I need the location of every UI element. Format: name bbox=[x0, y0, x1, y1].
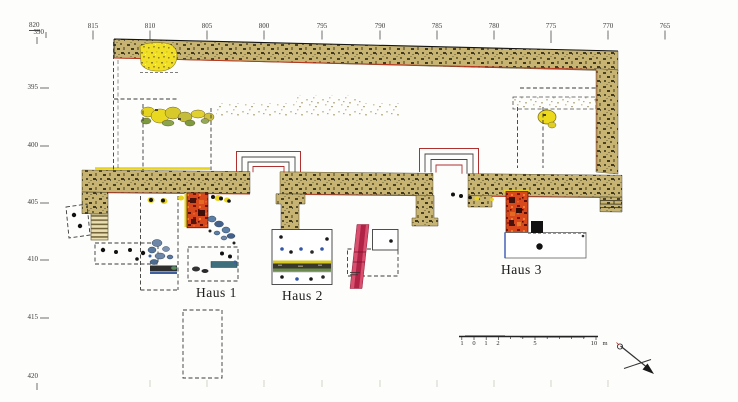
east-wall bbox=[596, 69, 618, 174]
pink-stripe-feature bbox=[350, 225, 369, 289]
top-axis-tick: 775 bbox=[546, 23, 557, 30]
scale-label: 1 bbox=[484, 341, 487, 348]
left-axis-tick: 405 bbox=[16, 199, 38, 206]
left-axis-tick: 410 bbox=[16, 256, 38, 263]
site-plan: 820 815 810 805 800 795 790 785 780 775 … bbox=[0, 0, 738, 402]
top-axis-tick: 765 bbox=[660, 23, 671, 30]
yellow-deposit-e bbox=[538, 110, 556, 128]
finds-haus1-se bbox=[192, 252, 237, 274]
stair-feature bbox=[91, 214, 108, 240]
top-axis-tick: 770 bbox=[603, 23, 614, 30]
plan-drawing bbox=[0, 0, 738, 402]
scale-label: 2 bbox=[496, 341, 499, 348]
left-axis-tick: 390 bbox=[22, 29, 44, 36]
stones-haus1-east bbox=[208, 216, 236, 245]
top-axis-tick: 800 bbox=[259, 23, 270, 30]
top-axis-tick: 795 bbox=[317, 23, 328, 30]
west-buttress bbox=[82, 192, 108, 214]
yellow-deposit-nw bbox=[140, 42, 178, 72]
postholes-west bbox=[72, 213, 152, 261]
rubble-scatter-band bbox=[216, 95, 596, 116]
left-axis-tick: 400 bbox=[16, 142, 38, 149]
wall-pillar-2 bbox=[412, 195, 438, 226]
left-axis-tick: 395 bbox=[16, 84, 38, 91]
scale-bar bbox=[459, 336, 598, 341]
top-axis-tick: 815 bbox=[88, 23, 99, 30]
stones-haus1-central bbox=[148, 240, 177, 275]
hearth-haus1 bbox=[185, 193, 209, 228]
top-axis-tick: 785 bbox=[432, 23, 443, 30]
top-axis-tick: 780 bbox=[489, 23, 500, 30]
left-axis-tick: 415 bbox=[16, 314, 38, 321]
north-arrow-icon bbox=[617, 343, 655, 375]
entrance-steps-1 bbox=[237, 152, 301, 173]
haus-1-label: Haus 1 bbox=[196, 286, 237, 300]
scale-label: 10 bbox=[591, 341, 598, 348]
wall-pillar-1 bbox=[276, 194, 305, 231]
yellow-wall-top-line bbox=[95, 167, 210, 170]
haus-2-label: Haus 2 bbox=[282, 289, 323, 303]
top-axis-tick: 790 bbox=[375, 23, 386, 30]
scale-unit-label: m bbox=[602, 341, 607, 348]
hearth-haus3 bbox=[504, 190, 529, 233]
north-wall bbox=[114, 39, 618, 71]
scale-label: 0 bbox=[472, 341, 475, 348]
room-haus2 bbox=[272, 230, 332, 285]
left-axis-tick: 420 bbox=[16, 373, 38, 380]
stone-band-haus1 bbox=[141, 107, 214, 126]
top-axis-tick: 805 bbox=[202, 23, 213, 30]
scale-label: 5 bbox=[533, 341, 536, 348]
bottom-faint-ticks bbox=[150, 380, 608, 387]
haus-3-label: Haus 3 bbox=[501, 263, 542, 277]
top-axis-tick: 810 bbox=[145, 23, 156, 30]
entrance-steps-2 bbox=[420, 149, 479, 174]
scale-label: 1 bbox=[460, 341, 463, 348]
